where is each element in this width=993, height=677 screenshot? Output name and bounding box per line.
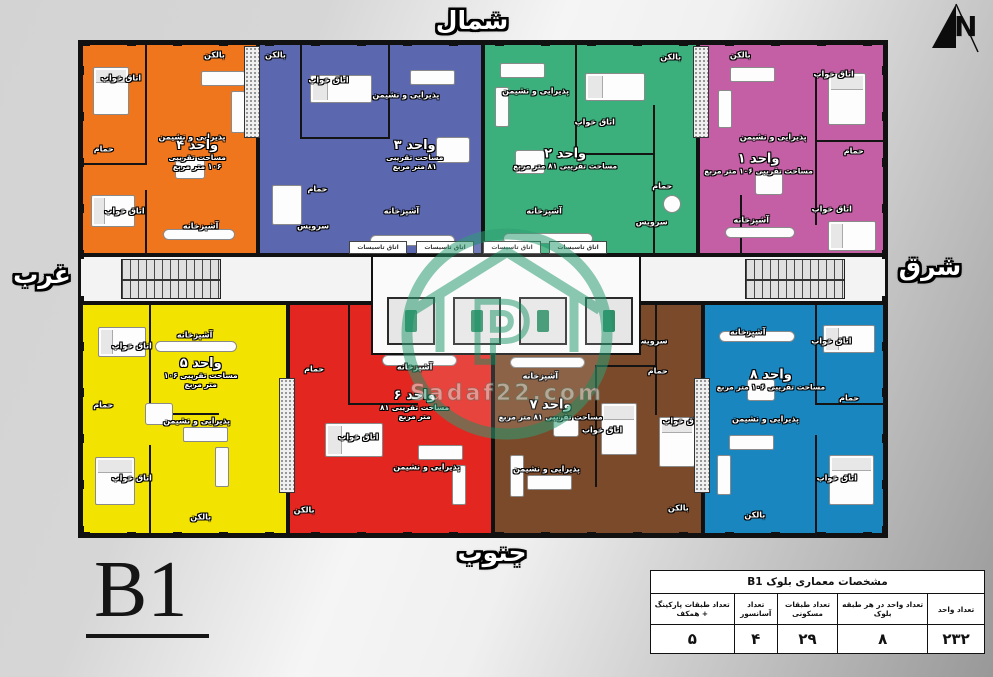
stairs-east	[745, 259, 845, 299]
interior-wall	[815, 403, 887, 405]
window-ticks-bottom	[81, 532, 885, 535]
interior-wall	[83, 163, 147, 165]
elevator-core	[371, 255, 641, 355]
unit-2: پذیرایی و نشیمناتاق خواببالکنحمامسرویسآش…	[483, 43, 698, 255]
furniture-rect	[717, 455, 731, 495]
interior-wall	[815, 435, 817, 537]
room-label: آشپزخانه	[397, 362, 432, 371]
room-label: پذیرایی و نشیمن	[502, 86, 569, 95]
unit-5: آشپزخانهاتاق خوابحمامپذیرایی و نشیمناتاق…	[81, 303, 288, 535]
unit-1: بالکناتاق خوابپذیرایی و نشیمنحمامآشپزخان…	[698, 43, 885, 255]
furniture-rect	[729, 435, 774, 450]
room-label: آشپزخانه	[526, 207, 561, 216]
room-label: حمام	[307, 184, 327, 193]
furniture-bedh	[585, 73, 645, 101]
room-label: بالکن	[660, 53, 681, 62]
window-ticks-right	[882, 43, 885, 535]
furniture-table	[755, 173, 783, 195]
room-label: پذیرایی و نشیمن	[372, 90, 439, 99]
furniture-rect	[183, 427, 228, 442]
interior-wall	[348, 305, 350, 405]
unit-title: واحد ۲مساحت تقریبی ۸۱ متر مربع	[513, 148, 617, 171]
col-units-per-floor-value: ۸	[838, 625, 928, 654]
interior-wall	[653, 105, 655, 255]
room-label: سرویس	[636, 217, 668, 226]
room-label: آشپزخانه	[730, 328, 765, 337]
room-label: حمام	[844, 147, 864, 156]
interior-wall	[655, 305, 657, 415]
interior-wall	[145, 45, 147, 163]
room-label: حمام	[652, 182, 672, 191]
utility-room-label: اتاق تاسیسات	[416, 241, 474, 254]
room-label: اتاق خواب	[575, 117, 615, 126]
room-label: آشپزخانه	[733, 215, 768, 224]
unit-8: آشپزخانهاتاق خوابحمامپذیرایی و نشیمناتاق…	[703, 303, 885, 535]
col-parking-floors-value: ۵	[651, 625, 735, 654]
room-label: پذیرایی و نشیمن	[163, 417, 230, 426]
floor-plan-page: N شمال جنوب غرب شرق بالکناتاق خوابپذیرای…	[0, 0, 993, 677]
room-label: حمام	[839, 394, 859, 403]
furniture-rect	[718, 90, 732, 128]
floor-plan: بالکناتاق خوابپذیرایی و نشیمنحمامآشپزخان…	[78, 40, 888, 538]
unit-name: واحد ۲	[513, 148, 617, 162]
furniture-rect	[272, 185, 302, 225]
col-residential-floors-value: ۲۹	[777, 625, 837, 654]
unit-title: واحد ۶مساحت تقریبی ۸۱ متر مربع	[376, 389, 452, 421]
col-unit-count-label: تعداد واحد	[928, 594, 985, 625]
window-ticks-top	[81, 43, 885, 46]
room-label: بالکن	[204, 51, 225, 60]
room-label: حمام	[648, 367, 668, 376]
interior-wall	[300, 137, 390, 139]
room-label: سرویس	[297, 221, 329, 230]
furniture-rect	[231, 91, 245, 133]
interior-wall	[740, 195, 742, 257]
room-label: آشپزخانه	[384, 207, 419, 216]
interior-wall	[149, 305, 151, 415]
room-label: اتاق خواب	[112, 342, 152, 351]
room-label: اتاق خواب	[112, 474, 152, 483]
furniture-counter	[163, 229, 235, 240]
balcony-hatch	[693, 46, 709, 138]
room-label: حمام	[304, 364, 324, 373]
unit-area: مساحت تقریبی ۸۱ متر مربع	[513, 162, 617, 171]
unit-3: بالکناتاق خوابپذیرایی و نشیمنحمامسرویسآش…	[258, 43, 483, 255]
block-code-label: B1	[86, 548, 209, 638]
utility-room-label: اتاق تاسیسات	[549, 241, 607, 254]
interior-wall	[300, 45, 302, 139]
furniture-rect	[215, 447, 229, 487]
furniture-counter	[155, 341, 237, 352]
room-label: آشپزخانه	[177, 330, 212, 339]
interior-wall	[149, 445, 151, 537]
elevator-icon	[585, 297, 633, 345]
unit-area: مساحت تقریبی ۸۱ متر مربع	[499, 412, 603, 421]
unit-title: واحد ۳مساحت تقریبی ۸۱ متر مربع	[382, 139, 448, 171]
unit-name: واحد ۱	[704, 152, 813, 166]
col-elevators-label: تعداد آسانسور	[734, 594, 777, 625]
compass-west-label: غرب	[6, 260, 78, 289]
col-residential-floors-label: تعداد طبقات مسکونی	[777, 594, 837, 625]
unit-4: اتاق خواببالکنپذیرایی و نشیمنحماماتاق خو…	[81, 43, 258, 255]
spec-table-title: مشخصات معماری بلوک B1	[651, 571, 985, 594]
room-label: اتاق خواب	[338, 433, 378, 442]
unit-area: مساحت تقریبی ۸۱ متر مربع	[382, 153, 448, 171]
room-label: آشپزخانه	[523, 371, 558, 380]
unit-name: واحد ۸	[717, 369, 826, 383]
room-label: پذیرایی و نشیمن	[732, 415, 799, 424]
furniture-round	[663, 195, 681, 213]
col-units-per-floor-label: تعداد واحد در هر طبقه بلوک	[838, 594, 928, 625]
furniture-rect	[410, 70, 455, 85]
elevator-icon	[387, 297, 435, 345]
unit-name: واحد ۴	[168, 139, 227, 153]
furniture-counter	[725, 227, 795, 238]
unit-title: واحد ۷مساحت تقریبی ۸۱ متر مربع	[499, 398, 603, 421]
col-unit-count-value: ۲۳۲	[928, 625, 985, 654]
room-label: آشپزخانه	[183, 221, 218, 230]
col-parking-floors-label: تعداد طبقات پارکینگ + همکف	[651, 594, 735, 625]
furniture-rect	[527, 475, 572, 490]
elevator-icon	[453, 297, 501, 345]
furniture-rect	[500, 63, 545, 78]
window-ticks-left	[81, 43, 84, 535]
furniture-rect	[418, 445, 463, 460]
spec-table: مشخصات معماری بلوک B1 تعداد واحد تعداد و…	[650, 570, 985, 654]
unit-name: واحد ۵	[158, 357, 243, 371]
unit-area: مساحت تقریبی ۱۰۶ متر مربع	[717, 383, 826, 392]
furniture-counter	[510, 357, 585, 368]
room-label: پذیرایی و نشیمن	[513, 465, 580, 474]
room-label: بالکن	[730, 51, 751, 60]
room-label: حمام	[93, 401, 113, 410]
furniture-rect	[510, 455, 524, 497]
stairs-west	[121, 259, 221, 299]
room-label: بالکن	[265, 51, 286, 60]
room-label: اتاق خواب	[104, 207, 144, 216]
room-label: پذیرایی و نشیمن	[393, 462, 460, 471]
furniture-rect	[201, 71, 245, 86]
room-label: اتاق خواب	[817, 474, 857, 483]
room-label: اتاق خواب	[582, 426, 622, 435]
room-label: اتاق خواب	[101, 74, 141, 83]
interior-wall	[815, 140, 887, 142]
balcony-hatch	[244, 46, 260, 138]
interior-wall	[815, 73, 817, 225]
room-label: اتاق خواب	[813, 70, 853, 79]
balcony-hatch	[694, 378, 710, 493]
interior-wall	[575, 45, 577, 155]
room-label: پذیرایی و نشیمن	[740, 132, 807, 141]
unit-area: مساحت تقریبی ۱۰۶ متر مربع	[168, 153, 227, 171]
furniture-bed	[828, 73, 866, 125]
interior-wall	[145, 190, 147, 257]
unit-title: واحد ۸مساحت تقریبی ۱۰۶ متر مربع	[717, 369, 826, 392]
unit-area: مساحت تقریبی ۸۱ متر مربع	[376, 403, 452, 421]
room-label: حمام	[94, 145, 114, 154]
col-elevators-value: ۴	[734, 625, 777, 654]
room-label: اتاق خواب	[811, 337, 851, 346]
balcony-hatch	[279, 378, 295, 493]
elevator-icon	[519, 297, 567, 345]
room-label: اتاق خواب	[308, 76, 348, 85]
unit-title: واحد ۱مساحت تقریبی ۱۰۶ متر مربع	[704, 152, 813, 175]
unit-area: مساحت تقریبی ۱۰۶ متر مربع	[158, 371, 243, 389]
utility-room-label: اتاق تاسیسات	[483, 241, 541, 254]
unit-area: مساحت تقریبی ۱۰۶ متر مربع	[704, 166, 813, 175]
north-arrow-icon: N	[928, 2, 982, 54]
room-label: بالکن	[190, 513, 211, 522]
unit-name: واحد ۶	[376, 389, 452, 403]
furniture-bedh	[828, 221, 876, 251]
unit-title: واحد ۴مساحت تقریبی ۱۰۶ متر مربع	[168, 139, 227, 171]
room-label: بالکن	[668, 503, 689, 512]
compass-south-label: جنوب	[412, 538, 572, 567]
unit-name: واحد ۳	[382, 139, 448, 153]
room-label: بالکن	[294, 506, 315, 515]
unit-title: واحد ۵مساحت تقریبی ۱۰۶ متر مربع	[158, 357, 243, 389]
compass-north-label: شمال	[392, 6, 552, 35]
room-label: بالکن	[744, 510, 765, 519]
compass-east-label: شرق	[890, 252, 970, 281]
furniture-rect	[730, 67, 775, 82]
room-label: اتاق خواب	[812, 205, 852, 214]
utility-room-label: اتاق تاسیسات	[349, 241, 407, 254]
svg-text:N: N	[954, 10, 977, 43]
unit-name: واحد ۷	[499, 398, 603, 412]
